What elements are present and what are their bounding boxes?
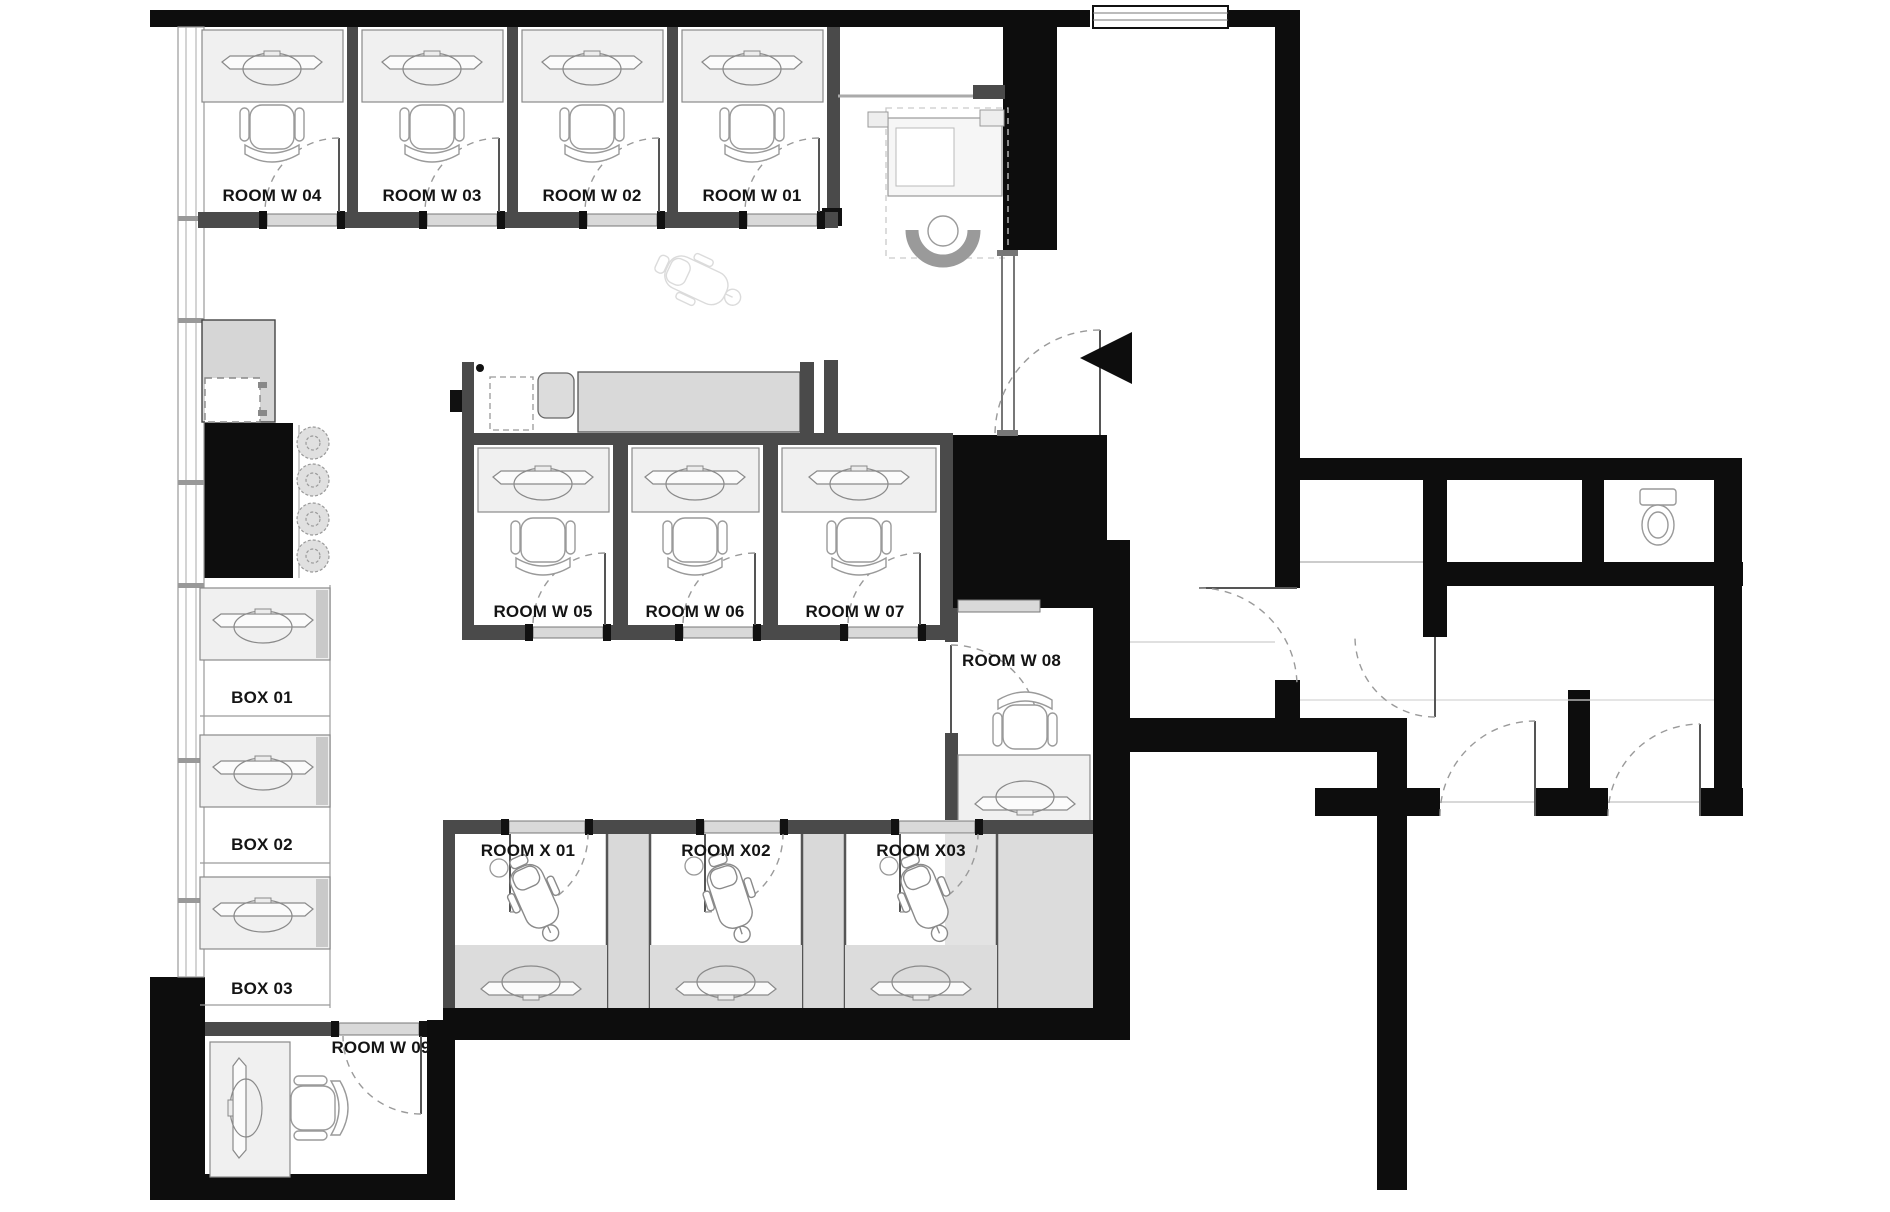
top-right-vertical-wall [1275,10,1300,480]
door-arc [1199,588,1297,686]
box-03-label: BOX 03 [231,979,293,998]
gray-floor [997,834,1093,1008]
office-chair-icon [560,105,624,162]
equipment-outline [490,377,533,430]
office-chair-icon [291,1076,348,1140]
top-wall [150,10,1090,27]
toilet-icon [1640,489,1676,545]
corridor-wall [1377,752,1407,1190]
window-left-facade [178,27,204,977]
room-w05-label: ROOM W 05 [493,602,592,621]
w07-right-wall [940,445,953,625]
room-w07-label: ROOM W 07 [805,602,904,621]
office-chair-icon [663,518,727,575]
room-w09: ROOM W 09 [205,1021,431,1177]
main-entrance [995,250,1132,436]
bench-counter [578,372,800,432]
faint-chair-icon [647,239,751,323]
room-w08-label: ROOM W 08 [962,651,1061,670]
room-w04-label: ROOM W 04 [222,186,321,205]
wall-right-of-w01 [827,27,840,208]
right-wing-top-wall [1275,458,1740,480]
counter-stub-wall [973,85,1005,99]
top-room-row: ROOM W 04 ROOM W 03 ROOM W 02 ROOM W 01 [198,27,842,229]
box-02: BOX 02 [200,735,330,863]
room-x02-label: ROOM X02 [681,841,770,860]
partition-w06-w07 [763,445,778,625]
box-03: BOX 03 [200,877,330,1005]
stool [538,373,574,418]
room-x03-label: ROOM X03 [876,841,965,860]
partition-w02-w01 [667,27,678,212]
box-01-label: BOX 01 [231,688,293,707]
appliance-outline [205,378,260,422]
link-wall [1117,718,1407,752]
room-w02-label: ROOM W 02 [542,186,641,205]
office-chair-icon [827,518,891,575]
plants [297,425,329,578]
floor-plan: ROOM W 04 ROOM W 03 ROOM W 02 ROOM W 01 [0,0,1890,1212]
partition-w03-w02 [507,27,518,212]
middle-block: ROOM W 05 ROOM W 06 ROOM W 07 [450,360,953,641]
office-chair-icon [511,518,575,575]
window-top-right [1093,6,1228,28]
reception-area [838,85,1008,261]
room-w09-right-wall [427,1020,455,1200]
bottom-left-wall [150,977,205,1195]
room-w01-label: ROOM W 01 [702,186,801,205]
room-w06-label: ROOM W 06 [645,602,744,621]
right-wing [1117,458,1743,1190]
entrance-door-arc [995,330,1100,435]
x-rooms-left-wall [443,820,455,1008]
bottom-main-wall [443,1008,1130,1040]
room-w09-bottom-wall [150,1174,455,1200]
service-shaft [953,435,1107,608]
person-icon [912,216,974,261]
partition-w04-w03 [347,27,358,212]
desk [210,1042,290,1177]
box-02-label: BOX 02 [231,835,293,854]
office-chair-icon [400,105,464,162]
entry-side-wall [1003,27,1057,250]
door-arc [1355,637,1435,717]
box-booth-column: BOX 01 BOX 02 BOX 03 [200,585,330,1008]
right-main-wall [1093,540,1130,1040]
w567-back-wall [462,433,953,445]
reception-equipment [896,128,954,186]
office-chair-icon [240,105,304,162]
room-w07: ROOM W 07 [782,448,936,621]
middle-left-wall [462,362,474,640]
floor-plan-drawing: ROOM W 04 ROOM W 03 ROOM W 02 ROOM W 01 [0,0,1890,1212]
right-wing-right-wall [1714,458,1742,816]
stool-icon [490,859,508,877]
office-chair-icon [993,692,1057,749]
office-chair-icon [720,105,784,162]
room-w09-label: ROOM W 09 [331,1038,430,1057]
kitchen-counter [202,320,275,422]
room-x02: ROOM X02 [650,841,802,1008]
room-w03-label: ROOM W 03 [382,186,481,205]
room-x01: ROOM X 01 [455,841,607,1008]
room-w06: ROOM W 06 [632,448,759,621]
room-w05: ROOM W 05 [478,448,609,621]
room-x01-label: ROOM X 01 [481,841,575,860]
box-01: BOX 01 [200,588,330,716]
partition-w05-w06 [613,445,628,625]
entrance-arrow-icon [1080,332,1132,384]
